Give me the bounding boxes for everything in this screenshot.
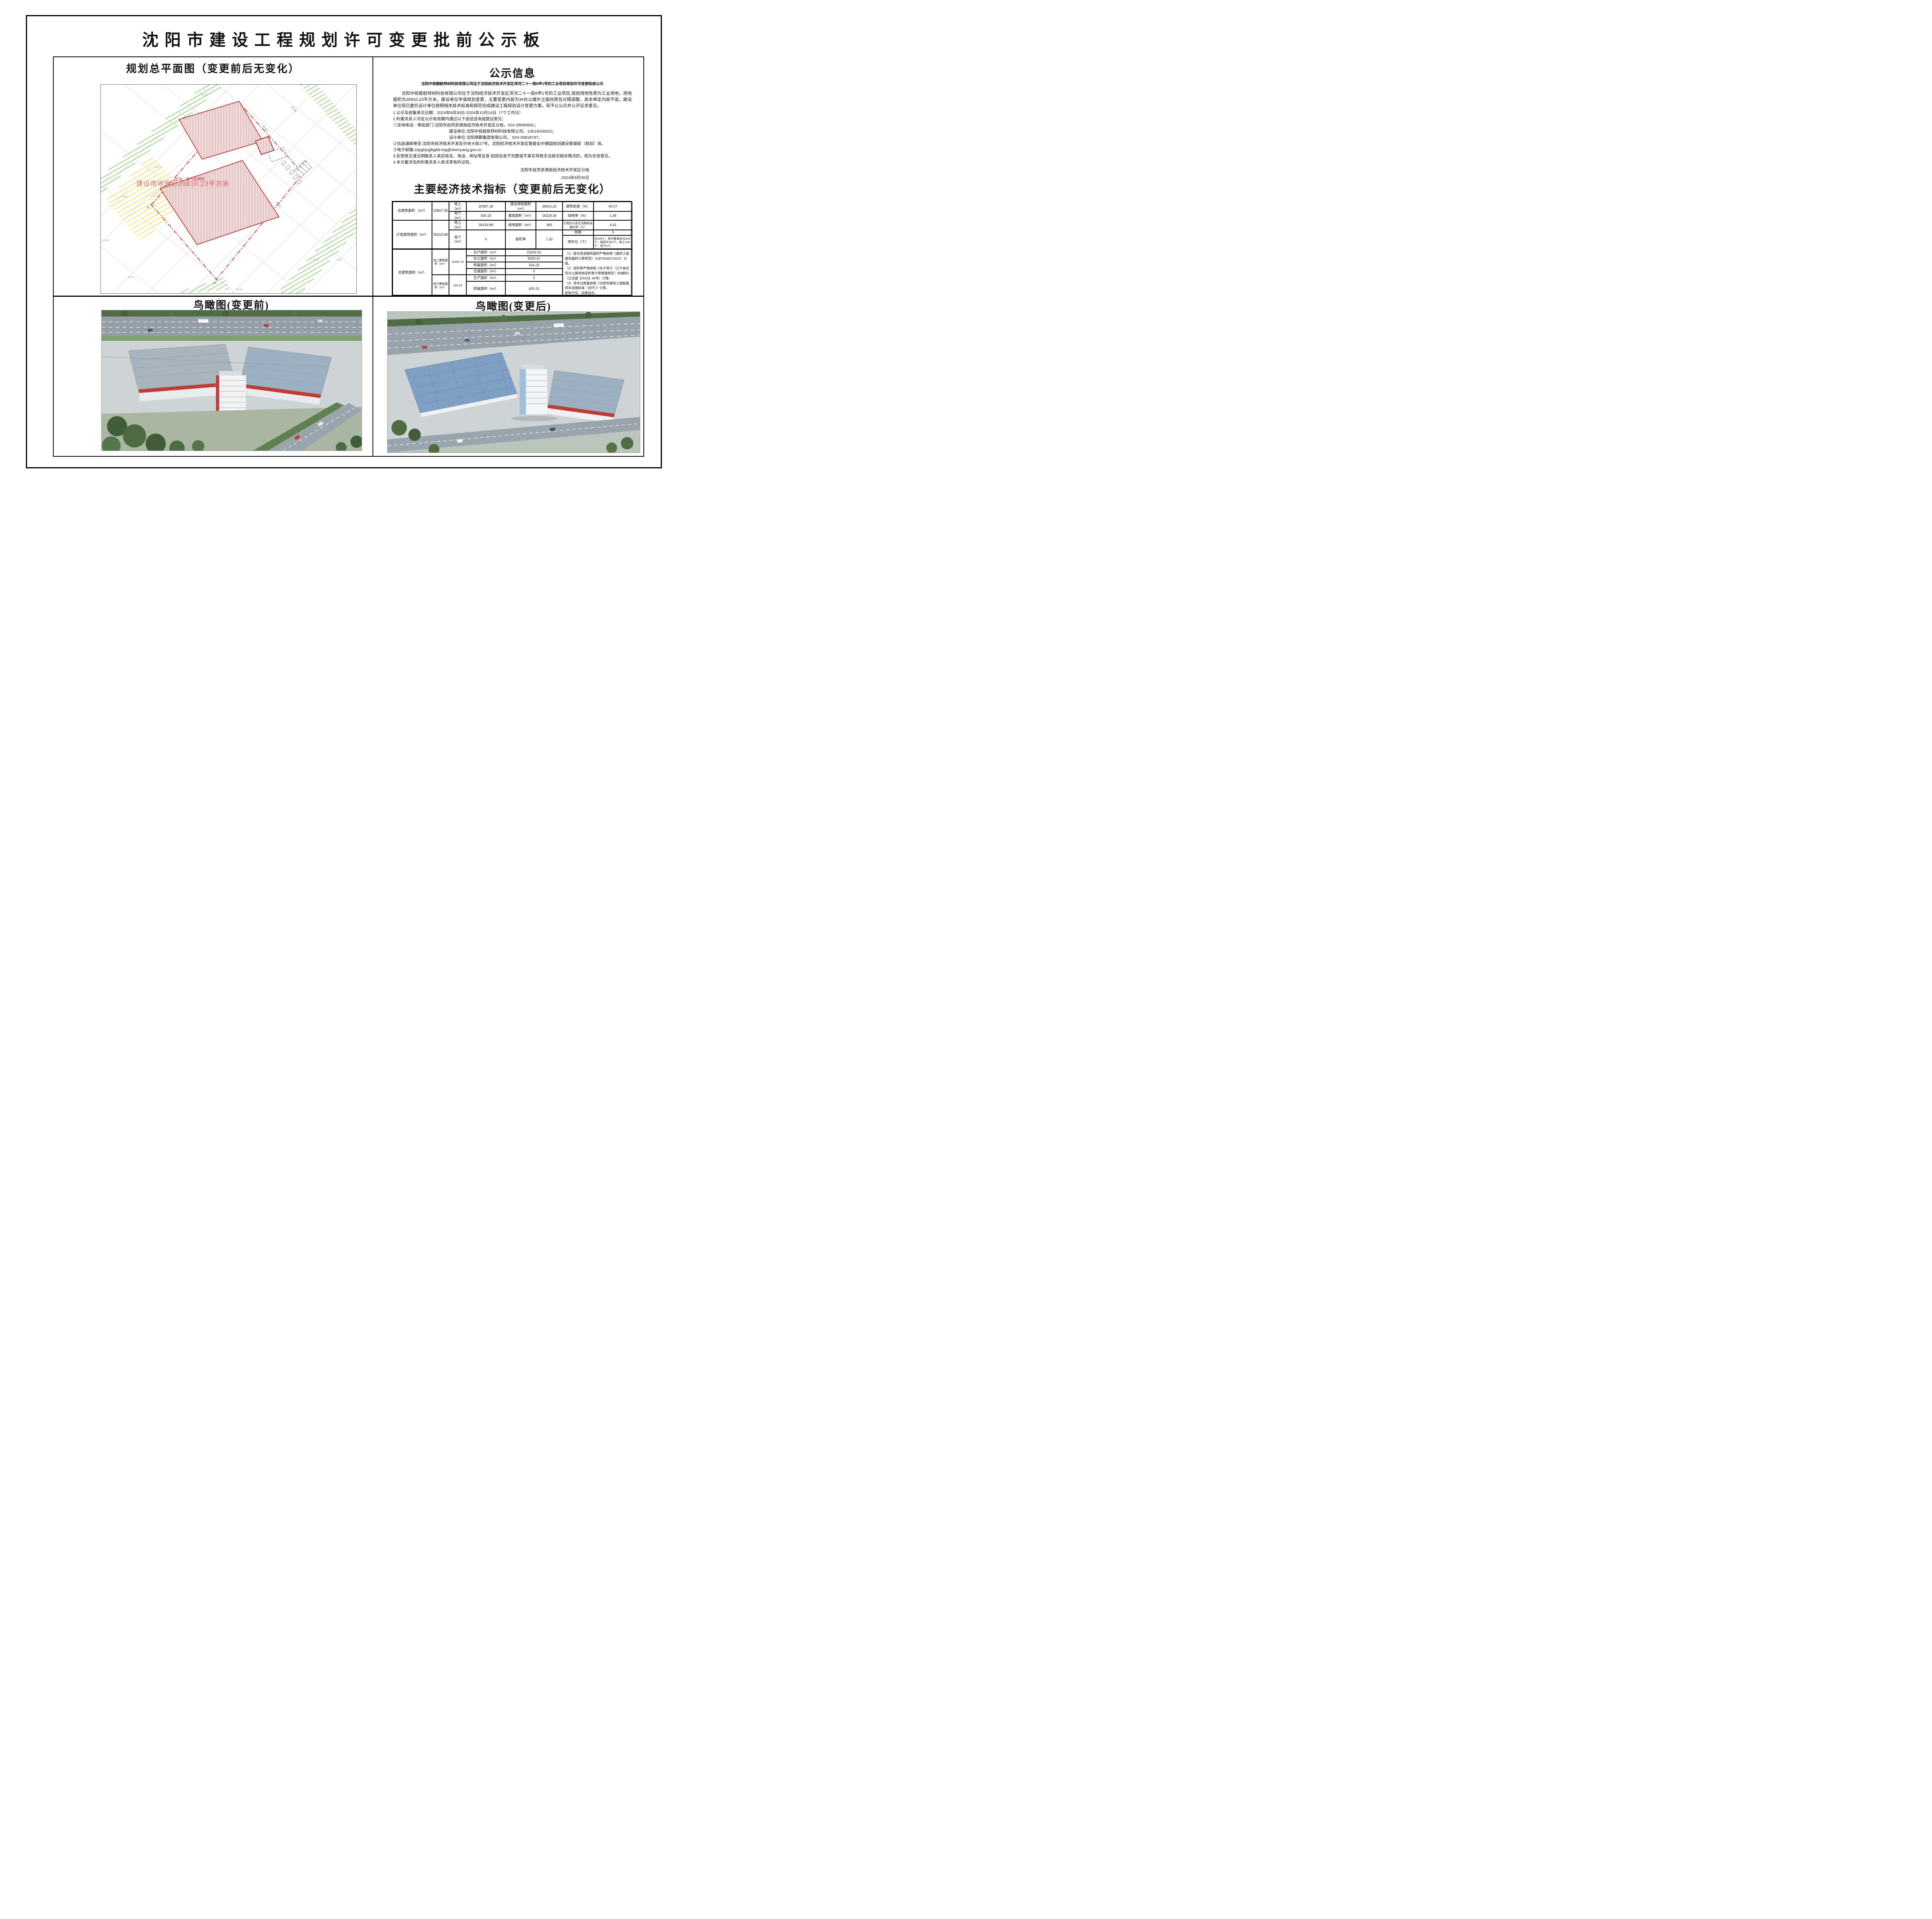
notice-item: 2.利害关系人可在公示有效期内通过以下途径咨询或提出意见： [393,116,632,122]
notice-item: 3.反馈意见请注明联系人真实姓名、电话、地址等信息:如因信息不完整或不真实导致无… [393,153,632,159]
table-cell: 0 [466,230,505,249]
table-cell: 地下（m²） [449,211,466,220]
svg-text:21: 21 [299,166,301,168]
table-cell: 附属面积（m²） [466,281,505,296]
table-cell: 总建筑面积 （m²） [393,202,432,220]
notice-item: ②信函请邮寄至:沈阳市经济技术开发区中央大街27号，沈阳经济技术开发区管委会中德… [393,141,632,147]
svg-text:20: 20 [296,169,299,171]
table-cell: 地上（m²） [449,202,466,211]
table-cell: 共106个，其中普通车位104个，装卸车位2个。地上104个，地下0个。 [594,235,633,249]
table-cell: 地下（m²） [449,230,466,249]
svg-text:J6: J6 [146,206,150,209]
content-frame: 规划总平面图（变更前后无变化） [53,56,644,457]
notice-board: 沈阳市建设工程规划许可变更批前公示板 规划总平面图（变更前后无变化） [0,0,678,480]
table-cell: 26910.23 [536,202,563,211]
notice-panel: 公示信息 沈阳中核舰航特材科技有限公司位于沈阳经济技术开发区浑河二十一街6甲1号… [372,57,643,296]
aerial-photo-after [387,311,640,453]
svg-text:33.28: 33.28 [290,106,297,113]
table-cell: 1.32 [536,230,563,249]
svg-text:22: 22 [302,163,304,166]
table-cell: 20387.16 [466,202,505,211]
table-cell: 60.27 [594,202,633,211]
table-cell: 20387.16 [449,249,466,275]
svg-text:29.3: 29.3 [337,259,342,261]
table-cell: 附属面积（m²） [466,262,505,269]
indicators-table: 总建筑面积 （m²） 20807.39 地上（m²） 20387.16 建设用地… [392,201,632,296]
table-cell: 基底面积（m²） [505,211,536,220]
svg-text:28.38: 28.38 [201,94,208,96]
site-plan-svg: 20 21 22 23 50.80 33.28 16.20 31.93 [101,85,356,293]
table-cell: 20807.39 [432,202,449,220]
notice-signature: 沈阳市自然资源局经济技术开发区分局 [393,167,632,173]
svg-text:J5: J5 [213,282,216,285]
table-cell: 324.23 [505,262,563,269]
table-cell: 1.36 [594,211,633,220]
notice-body: 沈阳中核舰航特材科技有限公司位于沈阳经济技术开发区浑河二十一街6甲1号的工业项目… [393,81,632,181]
gas-station-label: 加油、加气站用地 [174,177,205,182]
notice-item: 设计单位:沈阳祺鹏集团有限公司， 024-25818747。 [393,134,632,141]
notice-item: 1.公示及收集意见日期：2024年9月30日-2024年10月14日（7个工作日… [393,110,632,116]
table-cell: 容积率 [505,230,536,249]
notice-paragraph: 沈阳中核舰航特材科技有限公司位于沈阳经济技术开发区浑河二十一街6甲1号的工业项目… [393,90,632,109]
svg-text:30.43: 30.43 [103,239,109,242]
notice-date: 2024年9月30日 [393,175,632,181]
table-cell: 地下建筑面积（m²） [432,275,449,296]
table-cell: 仓储面积（m²） [466,269,505,275]
notice-subtitle: 沈阳中核舰航特材科技有限公司位于沈阳经济技术开发区浑河二十一街6甲1号的工业项目… [393,81,632,87]
notice-item: 建设单位:沈阳中核舰航特材科技有限公司，13614020022； [393,128,632,134]
notice-title: 公示信息 [393,65,632,80]
table-cell: 建设用地面积（m²） [505,202,536,211]
table-cell: 0 [505,275,563,281]
svg-text:23: 23 [304,161,307,163]
table-cell: 5 [594,230,633,235]
table-cell: 建筑密度（%） [563,202,594,211]
table-cell: 5030.41 [505,256,563,262]
svg-text:30.31: 30.31 [128,276,134,279]
indicators-title: 主要经济技术指标（变更前后无变化） [393,181,632,196]
table-cell: 地上（m²） [449,220,466,230]
svg-text:29.45: 29.45 [313,259,319,261]
table-notes-cell: （1）我司承诺建筑面积严格依照《建筑工程建筑面积计算规范》（GBT50353-2… [563,249,633,296]
table-cell: 总建筑面积（m²） [393,249,432,296]
view-after-label: 鸟瞰图(变更后) [387,298,639,313]
aerial-before-svg [102,310,362,451]
table-cell: 0 [505,269,563,275]
table-cell: 行政办公及生活服务设施比例（%） [563,220,594,230]
table-cell: 420.23 [449,275,466,296]
table-cell: 绿地面积（m²） [505,220,536,230]
building-2-footprint [160,160,279,245]
table-cell: 16218.35 [536,211,563,220]
table-cell: 栋数 [563,230,594,235]
svg-text:30.68: 30.68 [121,196,128,198]
table-cell: 办公面积（m²） [466,256,505,262]
table-cell: 420.23 [505,281,563,296]
svg-text:31.93: 31.93 [155,166,162,168]
table-cell: 计容建筑面积（m²） [393,220,432,249]
table-cell: 420.23 [466,211,505,220]
aerial-after-svg [388,312,640,453]
table-cell: 15032.52 [505,249,563,256]
page-title: 沈阳市建设工程规划许可变更批前公示板 [27,27,661,51]
notice-item: ①咨询电话：审批部门:沈阳市自然资源局经济技术开发区分局，024-2869093… [393,122,632,128]
table-cell: 生产面积（m²） [466,249,505,256]
table-cell: 365 [536,220,563,230]
table-cell: 4.41 [594,220,633,230]
dimension-labels: 50.80 33.28 16.20 [262,106,297,208]
parking-stalls [281,160,312,184]
table-cell: 35419.68 [466,220,505,230]
svg-text:29.93: 29.93 [236,288,243,291]
site-plan-title: 规划总平面图（变更前后无变化） [54,60,372,75]
table-cell: 地上建筑面积（m²） [432,249,449,275]
notice-item: ③电子邮箱:zdyghjsglbghb-txg@shenyang.gov.cn [393,147,632,153]
table-cell: 35419.68 [432,220,449,249]
table-cell: 停车位（个） [563,235,594,249]
notice-item: 4.本方案涉及的利害关系人依法享有听证权。 [393,159,632,165]
board-frame: 沈阳市建设工程规划许可变更批前公示板 规划总平面图（变更前后无变化） [26,15,662,468]
aerial-photo-before [101,310,362,451]
site-plan-drawing: 20 21 22 23 50.80 33.28 16.20 31.93 [100,84,357,294]
table-cell: 绿地率（%） [563,211,594,220]
table-cell: 生产面积（m²） [466,275,505,281]
